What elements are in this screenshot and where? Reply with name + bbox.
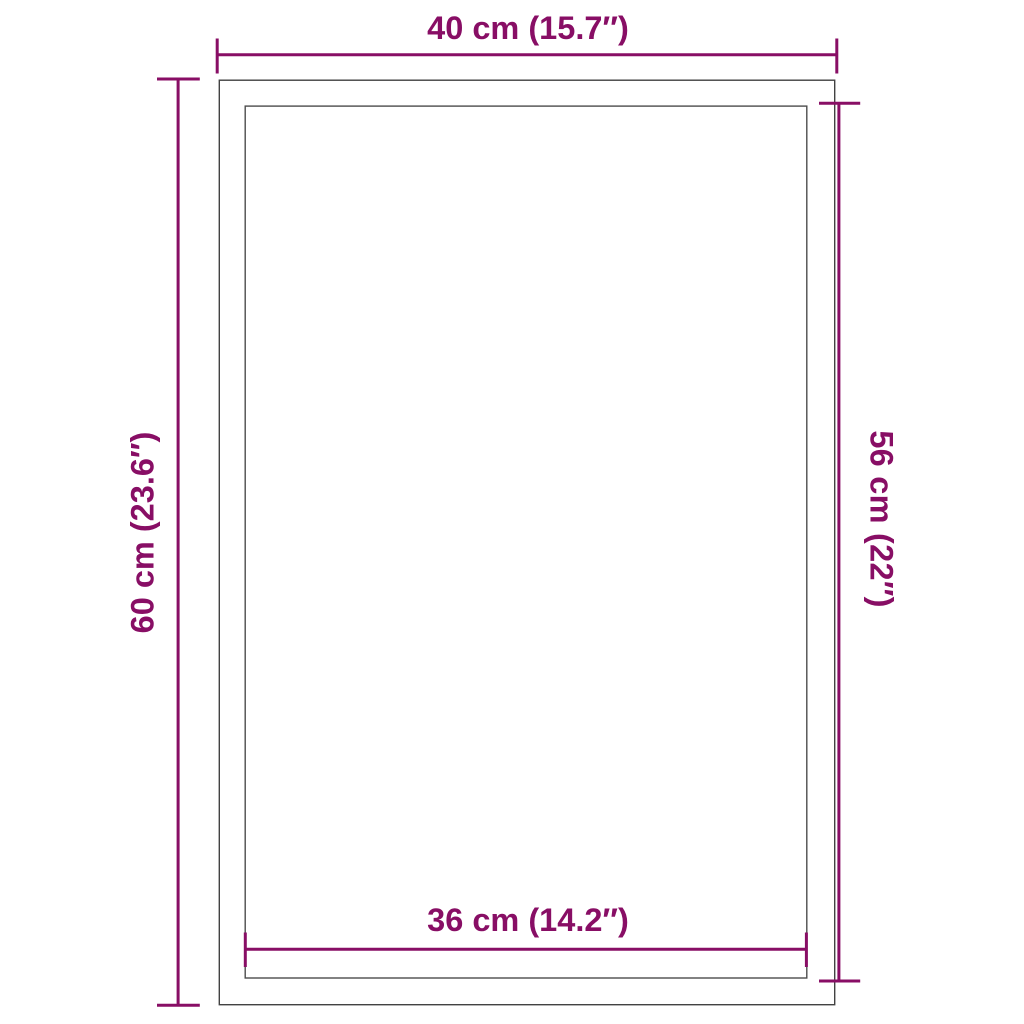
svg-text:60 cm (23.6″): 60 cm (23.6″)	[125, 432, 161, 634]
svg-text:40 cm (15.7″): 40 cm (15.7″)	[427, 10, 629, 46]
svg-text:36 cm (14.2″): 36 cm (14.2″)	[427, 902, 629, 938]
svg-text:56 cm (22″): 56 cm (22″)	[864, 430, 900, 607]
